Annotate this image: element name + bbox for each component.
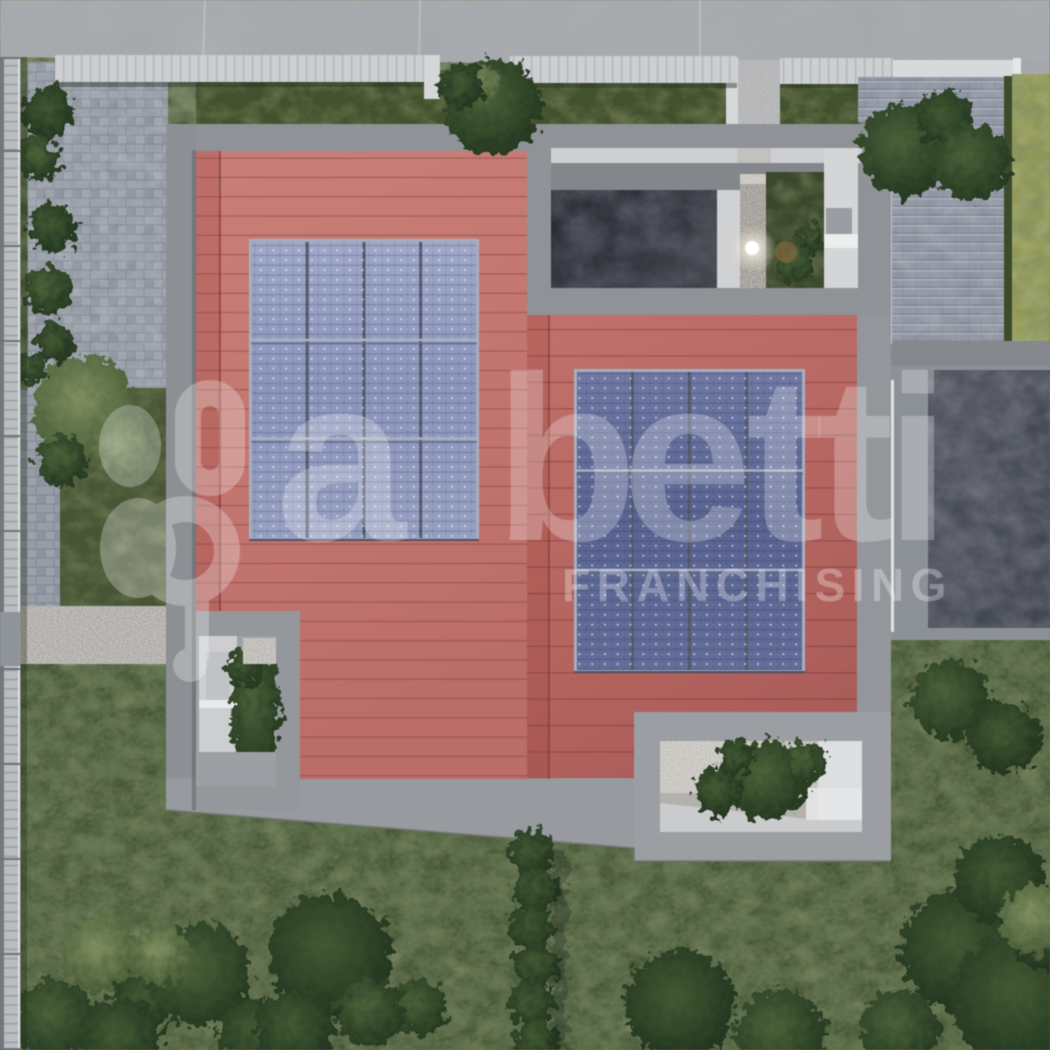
svg-text:i: i — [885, 327, 950, 590]
svg-text:a: a — [276, 327, 409, 590]
svg-text:b: b — [494, 327, 638, 590]
svg-text:t: t — [746, 327, 824, 590]
svg-text:e: e — [622, 327, 753, 590]
svg-text:FRANCHISING: FRANCHISING — [562, 559, 953, 611]
svg-text:t: t — [816, 327, 894, 590]
